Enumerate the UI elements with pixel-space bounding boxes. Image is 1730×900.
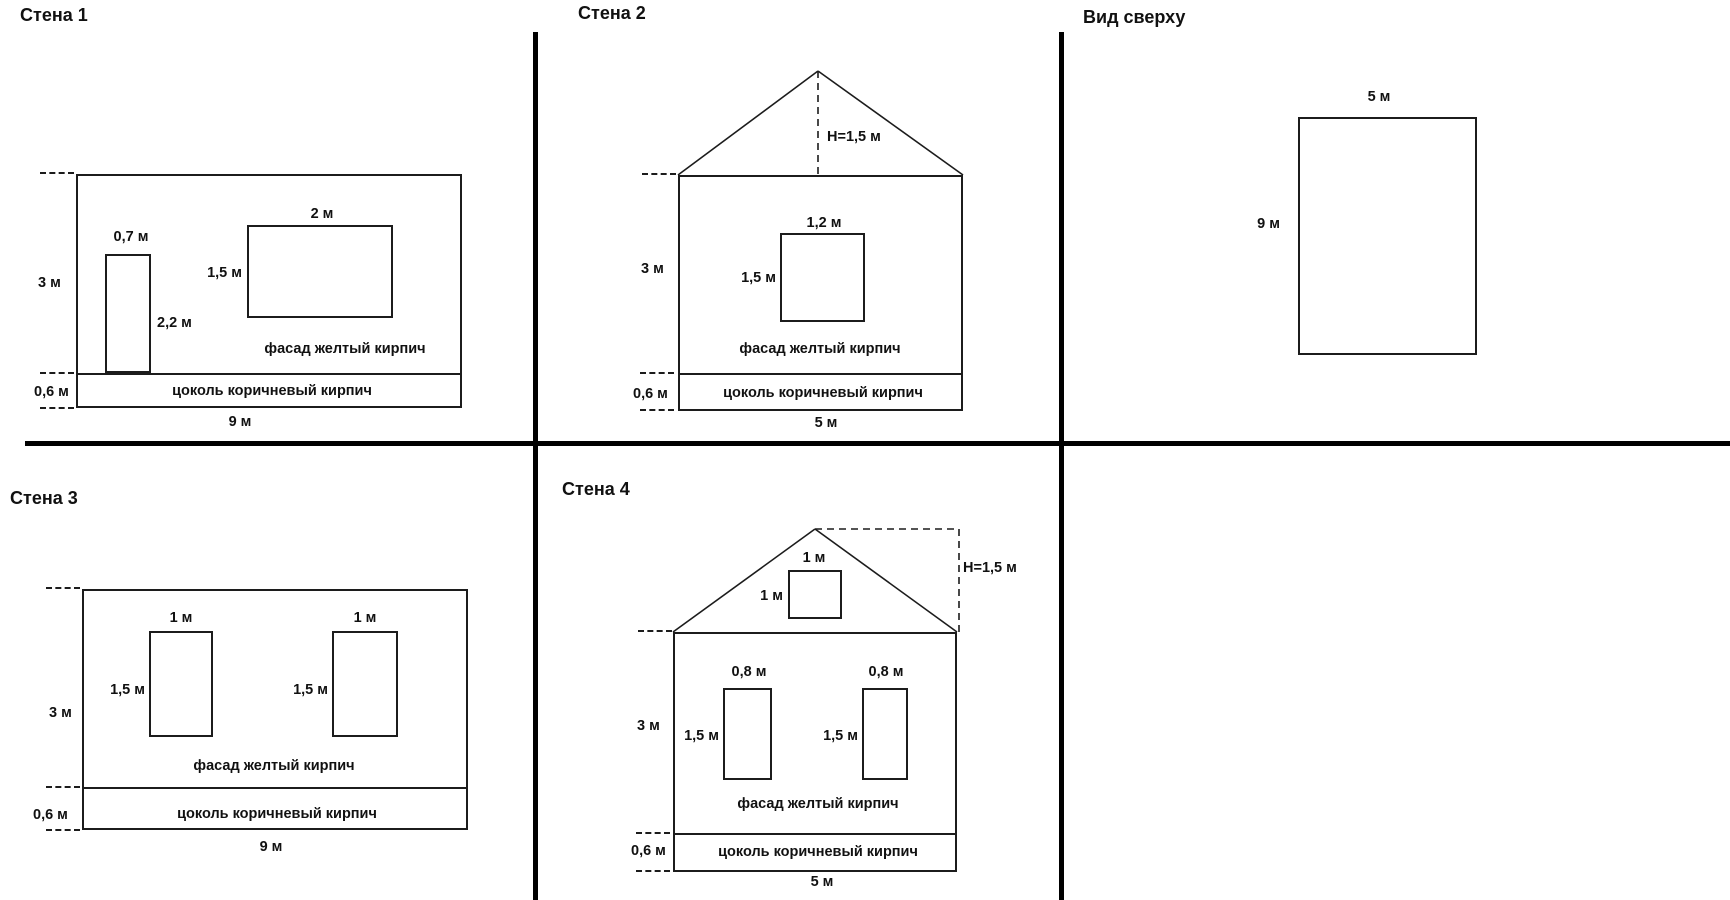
wall2-window-width-label: 1,2 м bbox=[807, 216, 842, 231]
wall1-window-width-label: 2 м bbox=[311, 207, 334, 222]
wall4-window2-width-label: 0,8 м bbox=[869, 665, 904, 680]
wall2-facade-label: фасад желтый кирпич bbox=[739, 342, 900, 357]
wall3-tick-bottom bbox=[46, 829, 80, 831]
wall1-height-label: 3 м bbox=[38, 276, 61, 291]
top-view-width-label: 5 м bbox=[1368, 90, 1391, 105]
wall1-tick-bottom bbox=[40, 407, 74, 409]
wall4-window2-height-label: 1,5 м bbox=[823, 729, 858, 744]
wall4-width-label: 5 м bbox=[811, 875, 834, 890]
wall3-tick-plinth-top bbox=[46, 786, 80, 788]
wall3-window1-width-label: 1 м bbox=[170, 611, 193, 626]
wall4-height-label: 3 м bbox=[637, 719, 660, 734]
wall3-width-label: 9 м bbox=[260, 840, 283, 855]
wall1-title: Стена 1 bbox=[20, 6, 88, 24]
wall3-window-2 bbox=[332, 631, 398, 737]
wall2-tick-top bbox=[642, 173, 676, 175]
wall4-title: Стена 4 bbox=[562, 480, 630, 498]
wall2-plinth-label: цоколь коричневый кирпич bbox=[723, 386, 923, 401]
wall2-roof-height-label: H=1,5 м bbox=[827, 130, 881, 145]
wall1-plinth-height-label: 0,6 м bbox=[34, 385, 69, 400]
wall1-plinth-label: цоколь коричневый кирпич bbox=[172, 384, 372, 399]
wall2-plinth-height-label: 0,6 м bbox=[633, 387, 668, 402]
wall1-tick-top bbox=[40, 172, 74, 174]
top-view-title: Вид сверху bbox=[1083, 8, 1185, 26]
wall3-outline bbox=[82, 589, 468, 830]
wall3-tick-top bbox=[46, 587, 80, 589]
wall1-door-width-label: 0,7 м bbox=[114, 230, 149, 245]
wall3-plinth-label: цоколь коричневый кирпич bbox=[177, 807, 377, 822]
wall3-window-1 bbox=[149, 631, 213, 737]
wall4-tick-plinth-top bbox=[636, 832, 670, 834]
divider-horizontal bbox=[25, 441, 1730, 446]
wall3-window2-height-label: 1,5 м bbox=[293, 683, 328, 698]
wall3-facade-label: фасад желтый кирпич bbox=[193, 759, 354, 774]
wall1-window bbox=[247, 225, 393, 318]
wall1-window-height-label: 1,5 м bbox=[207, 266, 242, 281]
wall2-tick-plinth-top bbox=[640, 372, 674, 374]
wall2-title: Стена 2 bbox=[578, 4, 646, 22]
wall2-window-height-label: 1,5 м bbox=[741, 271, 776, 286]
wall4-window1-height-label: 1,5 м bbox=[684, 729, 719, 744]
wall3-height-label: 3 м bbox=[49, 706, 72, 721]
wall2-window bbox=[780, 233, 865, 322]
wall3-window2-width-label: 1 м bbox=[354, 611, 377, 626]
wall1-tick-plinth-top bbox=[40, 372, 74, 374]
wall4-attic-window bbox=[788, 570, 842, 619]
wall4-tick-bottom bbox=[636, 870, 670, 872]
wall1-door-height-label: 2,2 м bbox=[157, 316, 192, 331]
wall4-window-1 bbox=[723, 688, 772, 780]
wall4-tick-top bbox=[638, 630, 672, 632]
top-view-depth-label: 9 м bbox=[1257, 217, 1280, 232]
wall4-attic-height-label: 1 м bbox=[760, 589, 783, 604]
wall1-door bbox=[105, 254, 151, 373]
divider-vertical-1 bbox=[533, 32, 538, 900]
wall4-window1-width-label: 0,8 м bbox=[732, 665, 767, 680]
wall1-plinth-line bbox=[76, 373, 462, 375]
wall4-plinth-label: цоколь коричневый кирпич bbox=[718, 845, 918, 860]
wall3-plinth-height-label: 0,6 м bbox=[33, 808, 68, 823]
wall4-plinth-height-label: 0,6 м bbox=[631, 844, 666, 859]
wall3-window1-height-label: 1,5 м bbox=[110, 683, 145, 698]
wall4-facade-label: фасад желтый кирпич bbox=[737, 797, 898, 812]
wall1-facade-label: фасад желтый кирпич bbox=[264, 342, 425, 357]
wall2-width-label: 5 м bbox=[815, 416, 838, 431]
wall2-height-label: 3 м bbox=[641, 262, 664, 277]
divider-vertical-2 bbox=[1059, 32, 1064, 900]
wall4-plinth-line bbox=[673, 833, 957, 835]
wall2-roof bbox=[640, 60, 980, 185]
wall1-width-label: 9 м bbox=[229, 415, 252, 430]
wall2-tick-bottom bbox=[640, 409, 674, 411]
wall2-plinth-line bbox=[678, 373, 963, 375]
wall4-window-2 bbox=[862, 688, 908, 780]
blueprint-canvas: Стена 1 3 м 0,7 м 2,2 м 2 м 1,5 м фасад … bbox=[0, 0, 1730, 900]
wall4-outline bbox=[673, 632, 957, 872]
top-view-outline bbox=[1298, 117, 1477, 355]
wall4-roof-height-label: H=1,5 м bbox=[963, 561, 1017, 576]
wall4-attic-width-label: 1 м bbox=[803, 551, 826, 566]
wall3-title: Стена 3 bbox=[10, 489, 78, 507]
wall3-plinth-line bbox=[82, 787, 468, 789]
